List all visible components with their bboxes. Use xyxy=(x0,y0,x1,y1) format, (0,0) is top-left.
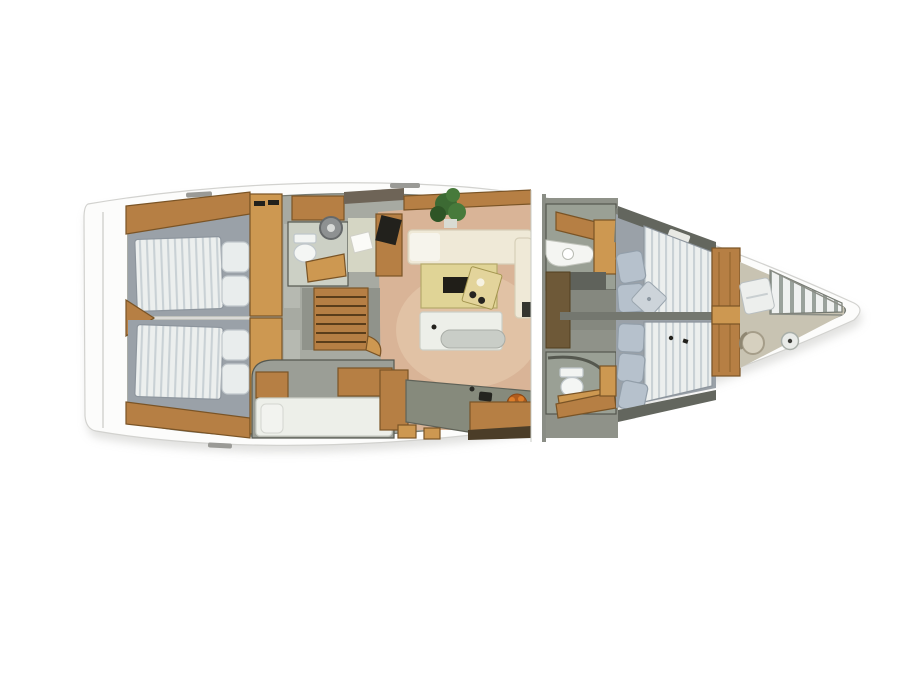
pillow xyxy=(617,353,646,384)
bolster-cushion xyxy=(441,330,505,348)
bulkhead-seam: Main bulkhead seam at mast position xyxy=(531,184,546,446)
centerline-block xyxy=(712,306,744,324)
slatted-floor xyxy=(770,270,842,314)
step xyxy=(398,425,416,438)
toilet-tank xyxy=(294,234,316,243)
locker xyxy=(292,196,344,220)
wardrobe xyxy=(250,194,282,316)
fwd-lockers xyxy=(546,272,570,348)
pillow xyxy=(222,364,249,394)
companionway: Companionway stairs xyxy=(302,288,381,356)
shower-floor xyxy=(566,272,606,290)
sink xyxy=(479,391,493,401)
pillow xyxy=(222,242,249,272)
cabinet xyxy=(256,372,288,398)
pillow xyxy=(617,323,644,352)
centerline-divider xyxy=(560,312,716,320)
aft-head: Aft head with toilet and round washer un… xyxy=(288,196,348,286)
remote xyxy=(432,325,437,330)
galley-unit xyxy=(380,370,408,430)
pillow xyxy=(222,330,249,360)
toilet-tank xyxy=(560,368,583,377)
deck-hatch xyxy=(390,183,420,188)
sofa-cushion xyxy=(410,233,440,261)
wardrobe-handle xyxy=(254,201,265,206)
fwd-cabin-bottom: Forward cabin berth (lower) with three p… xyxy=(600,320,716,422)
fwd-bulkhead: Forward wooden bulkhead xyxy=(712,248,744,376)
toilet xyxy=(294,244,316,262)
utility-berth: Single berth utility cabin xyxy=(252,360,394,438)
pillow xyxy=(616,250,647,284)
wardrobe-handle xyxy=(268,200,279,205)
mattress xyxy=(135,237,223,312)
mattress xyxy=(135,325,223,400)
vanity-sink xyxy=(563,249,574,260)
pillow xyxy=(222,276,249,306)
pillow xyxy=(261,404,283,433)
plant-pot xyxy=(444,219,457,228)
yacht-floorplan: Yacht hull, top view with bow to the rig… xyxy=(0,0,900,675)
berth-cushion xyxy=(739,277,775,315)
aft-cabin-top: Aft double cabin (upper) with striped ma… xyxy=(126,192,282,316)
sink-drain xyxy=(788,339,792,343)
stair-wall xyxy=(302,288,314,350)
wood-trim xyxy=(600,366,616,396)
fitting xyxy=(669,336,673,340)
yacht-layout-render: Yacht hull, top view with bow to the rig… xyxy=(0,0,900,675)
step xyxy=(424,428,440,439)
wood-column xyxy=(594,220,616,274)
faucet xyxy=(470,387,475,392)
fwd-cabin-top: Forward cabin berth (upper) with pillows… xyxy=(616,206,716,318)
washer-hub xyxy=(327,224,335,232)
